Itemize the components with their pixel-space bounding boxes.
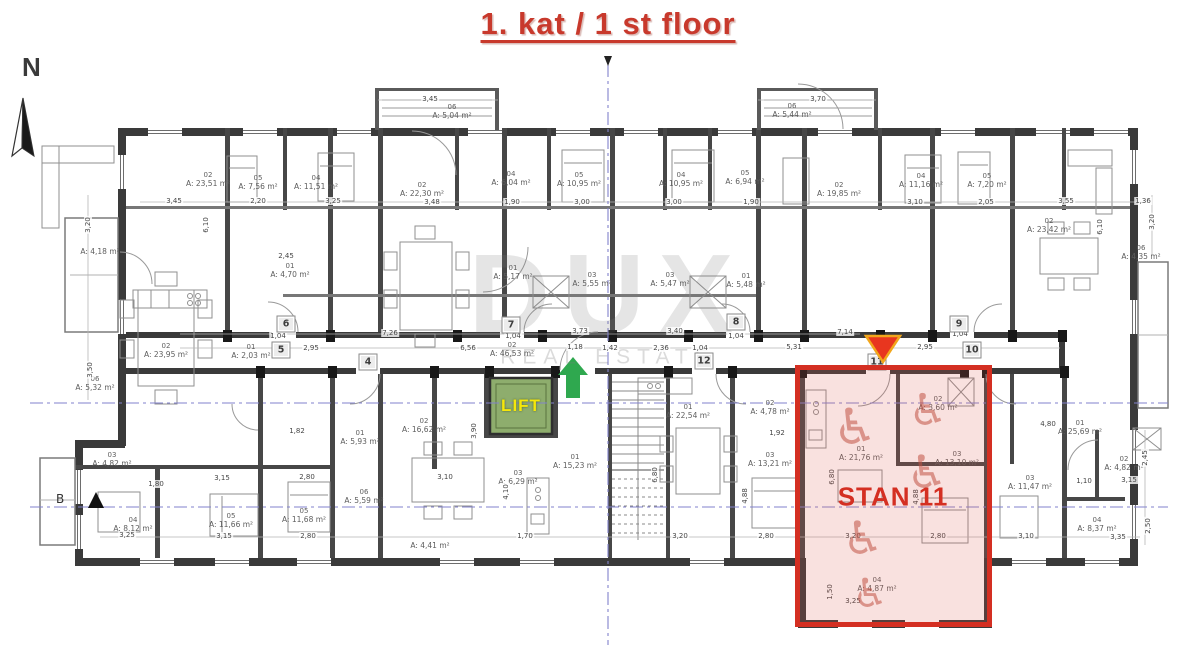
- page-title: 1. kat / 1 st floor: [480, 6, 735, 42]
- stairs: [612, 380, 664, 540]
- entry-arrow-icon: [558, 357, 588, 398]
- floorplan-page: DUX REAL ESTATE 02 A: 23,51 m² 05 A: 7,5…: [0, 0, 1200, 648]
- dimension-lines: [88, 100, 1152, 545]
- north-label: N: [22, 52, 41, 83]
- stan11-label: STAN 11: [838, 482, 949, 513]
- entrance-marker: [862, 333, 904, 365]
- corridor-walls: [126, 332, 1065, 374]
- upper-partitions: [126, 128, 1130, 332]
- windows: [75, 128, 1138, 628]
- section-marker-label: B: [56, 492, 64, 506]
- floorplan-drawing: [0, 0, 1200, 648]
- entrance-marker-icon: [866, 336, 900, 362]
- section-marker-icon: [88, 492, 104, 508]
- lift-label: LIFT: [501, 396, 541, 416]
- outer-walls: [75, 128, 1138, 628]
- furniture: [42, 146, 1161, 543]
- north-arrow-icon: [12, 98, 34, 156]
- axis-arrowhead: [604, 56, 612, 66]
- axis-lines: [30, 64, 1168, 645]
